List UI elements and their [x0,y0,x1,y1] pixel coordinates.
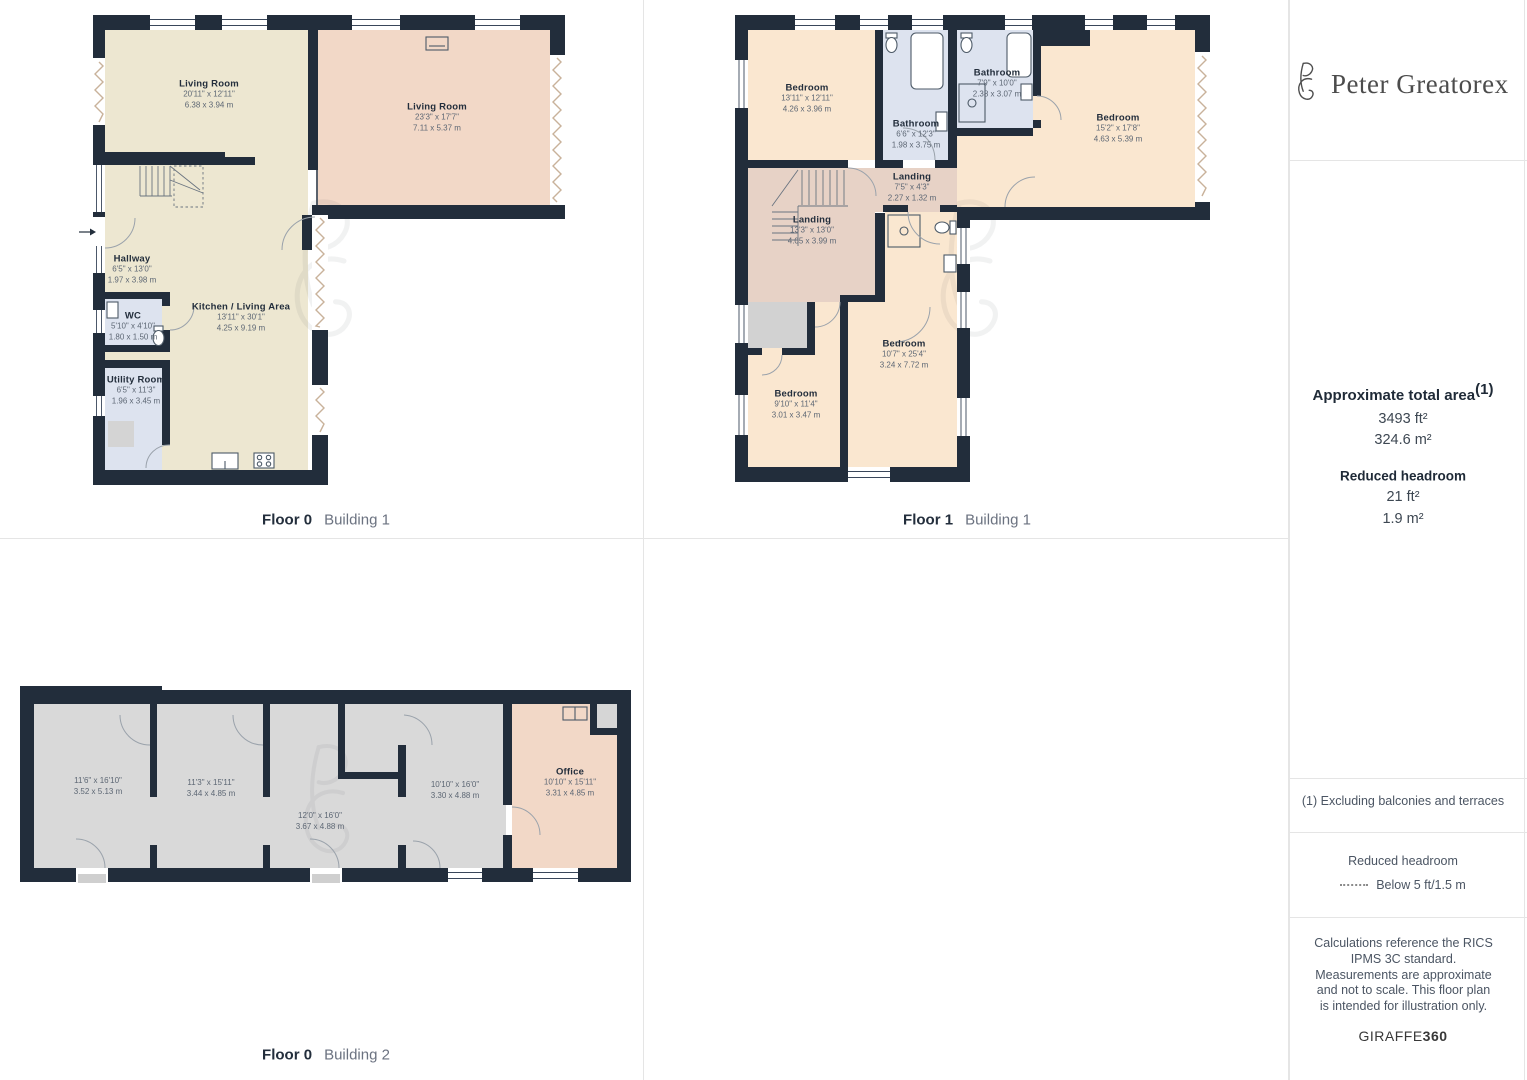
floor-label: Floor 0 [262,512,312,529]
room-name: Bedroom [880,339,928,350]
room-dimensions-imperial: 13'11" x 12'11" [781,94,833,105]
building-label: Building 2 [324,1047,390,1064]
room-label: 11'3" x 15'11" 3.44 x 4.85 m [187,778,235,800]
reduced-headroom-title: Reduced headroom [1340,469,1466,484]
room-dimensions-metric: 3.24 x 7.72 m [880,361,928,372]
room-dimensions-imperial: 11'6" x 16'10" [74,776,122,787]
room-dimensions-imperial: 7'5" x 4'3" [888,183,936,194]
room-dimensions-metric: 3.52 x 5.13 m [74,787,122,798]
building-label: Building 1 [965,512,1031,529]
room-name: Hallway [108,254,156,265]
legend-row: Below 5 ft/1.5 m [1340,878,1466,892]
stove-icon [254,453,274,468]
room-dimensions-imperial: 6'6" x 12'3" [892,130,940,141]
room-name: Bedroom [781,83,833,94]
appliance-icon [108,421,134,447]
room-label: Utility Room 6'5" x 11'3" 1.96 x 3.45 m [107,375,165,408]
room-label: Kitchen / Living Area 13'11" x 30'1" 4.2… [192,302,290,335]
legend-label: Below 5 ft/1.5 m [1376,878,1466,892]
room-label: Office 10'10" x 15'11" 3.31 x 4.85 m [544,767,596,800]
room-name: WC [109,311,157,322]
room-name: Landing [788,215,836,226]
room-name: Living Room [407,102,467,113]
room-dimensions-metric: 2.27 x 1.32 m [888,194,936,205]
room-label: WC 5'10" x 4'10" 1.80 x 1.50 m [109,311,157,344]
room-dimensions-imperial: 13'11" x 30'1" [192,313,290,324]
plan-caption: Floor 0 Building 2 [262,1047,390,1064]
room-name: Bathroom [973,68,1021,79]
room-dimensions-metric: 1.97 x 3.98 m [108,276,156,287]
room-name: Landing [888,172,936,183]
total-area-imperial: 3493 ft² [1378,411,1427,427]
room-name: Bedroom [1094,113,1142,124]
building-label: Building 1 [324,512,390,529]
room-dimensions-metric: 7.11 x 5.37 m [407,124,467,135]
room-dimensions-imperial: 20'11" x 12'11" [179,90,239,101]
room-label: 11'6" x 16'10" 3.52 x 5.13 m [74,776,122,798]
room-label: 10'10" x 16'0" 3.30 x 4.88 m [431,780,479,802]
closet [597,704,617,728]
room-name: Kitchen / Living Area [192,302,290,313]
room-label: Bedroom 9'10" x 11'4" 3.01 x 3.47 m [772,389,820,422]
reduced-headroom-metric: 1.9 m² [1382,511,1423,527]
brand-monogram-icon [1293,60,1319,104]
room-dimensions-metric: 3.01 x 3.47 m [772,411,820,422]
room-dimensions-imperial: 6'5" x 13'0" [108,265,156,276]
bathtub-icon [911,33,943,89]
brand-name: Peter Greatorex [1331,69,1509,100]
reduced-headroom-dotted-line-icon [1340,884,1368,886]
sink-icon [1021,84,1032,100]
disclaimer-text: Calculations reference the RICS IPMS 3C … [1313,936,1494,1015]
plan-caption: Floor 1 Building 1 [903,512,1031,529]
reduced-headroom-imperial: 21 ft² [1386,489,1419,505]
room-dimensions-metric: 3.30 x 4.88 m [431,791,479,802]
room-dimensions-metric: 6.38 x 3.94 m [179,101,239,112]
room-name: Living Room [179,79,239,90]
room-dimensions-imperial: 5'10" x 4'10" [109,322,157,333]
room-dimensions-metric: 3.31 x 4.85 m [544,789,596,800]
room-dimensions-imperial: 7'9" x 10'0" [973,79,1021,90]
room-label: Living Room 20'11" x 12'11" 6.38 x 3.94 … [179,79,239,112]
footnote-marker: (1) [1475,381,1493,398]
room-dimensions-imperial: 10'10" x 16'0" [431,780,479,791]
total-area-title: Approximate total area(1) [1313,381,1494,405]
room-label: Bathroom 7'9" x 10'0" 2.38 x 3.07 m [973,68,1021,101]
room-dimensions-imperial: 10'7" x 25'4" [880,350,928,361]
zigzag-opening-icon [1195,52,1210,202]
room-dimensions-metric: 2.38 x 3.07 m [973,90,1021,101]
room-dimensions-imperial: 15'2" x 17'8" [1094,124,1142,135]
room-label: Landing 7'5" x 4'3" 2.27 x 1.32 m [888,172,936,205]
room-dimensions-imperial: 9'10" x 11'4" [772,400,820,411]
room-label: Bathroom 6'6" x 12'3" 1.98 x 3.75 m [892,119,940,152]
room-name: Bedroom [772,389,820,400]
room-dimensions-imperial: 11'3" x 15'11" [187,778,235,789]
total-area-metric: 324.6 m² [1374,432,1431,448]
room-dimensions-imperial: 23'3" x 17'7" [407,113,467,124]
credit-name: GIRAFFE [1358,1028,1422,1044]
room-dimensions-metric: 3.44 x 4.85 m [187,789,235,800]
sink-icon [944,255,956,272]
credit-suffix: 360 [1423,1028,1448,1044]
floor-label: Floor 0 [262,1047,312,1064]
area-footnote: (1) Excluding balconies and terraces [1302,794,1504,808]
room-dimensions-metric: 1.96 x 3.45 m [107,397,165,408]
room-name: Bathroom [892,119,940,130]
room-label: Landing 13'3" x 13'0" 4.05 x 3.99 m [788,215,836,248]
room-dimensions-metric: 1.98 x 3.75 m [892,141,940,152]
room-dimensions-metric: 4.05 x 3.99 m [788,237,836,248]
toilet-icon [886,33,897,53]
room-dimensions-metric: 4.25 x 9.19 m [192,324,290,335]
room-dimensions-imperial: 13'3" x 13'0" [788,226,836,237]
room-label: Bedroom 10'7" x 25'4" 3.24 x 7.72 m [880,339,928,372]
legend-title: Reduced headroom [1348,854,1458,868]
room-label: Living Room 23'3" x 17'7" 7.11 x 5.37 m [407,102,467,135]
room-label: Hallway 6'5" x 13'0" 1.97 x 3.98 m [108,254,156,287]
room-dimensions-metric: 1.80 x 1.50 m [109,333,157,344]
room-label: 12'0" x 16'0" 3.67 x 4.88 m [296,811,344,833]
room-dimensions-imperial: 10'10" x 15'11" [544,778,596,789]
room-label: Bedroom 15'2" x 17'8" 4.63 x 5.39 m [1094,113,1142,146]
floorplan-page: Living Room 20'11" x 12'11" 6.38 x 3.94 … [0,0,1527,1080]
room-label: Bedroom 13'11" x 12'11" 4.26 x 3.96 m [781,83,833,116]
sink-icon [212,453,238,469]
room-dimensions-metric: 4.63 x 5.39 m [1094,135,1142,146]
room-name: Office [544,767,596,778]
floor-label: Floor 1 [903,512,953,529]
floorplans-graphic [0,0,1527,1080]
room-dimensions-imperial: 6'5" x 11'3" [107,386,165,397]
room-dimensions-metric: 4.26 x 3.96 m [781,105,833,116]
giraffe360-credit: GIRAFFE360 [1358,1028,1447,1044]
plan-caption: Floor 0 Building 1 [262,512,390,529]
toilet-icon [935,221,956,234]
room-dimensions-metric: 3.67 x 4.88 m [296,822,344,833]
room-name: Utility Room [107,375,165,386]
plan-floor0-building1 [79,15,565,485]
toilet-icon [961,33,972,53]
room-dimensions-imperial: 12'0" x 16'0" [296,811,344,822]
